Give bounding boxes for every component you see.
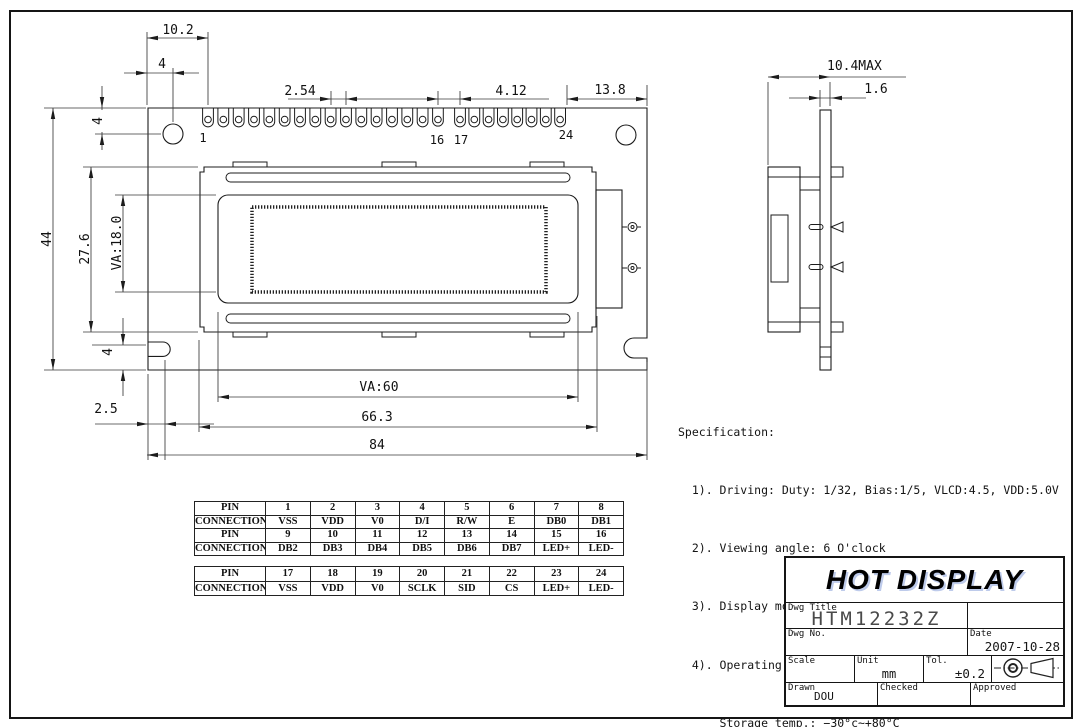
pin-pad — [433, 108, 444, 126]
pin-hole — [404, 116, 411, 123]
dim-slot-width: 2.5 — [94, 402, 214, 426]
dwg-no-label: Dwg No. — [788, 629, 826, 640]
pin-table-cell: DB5 — [400, 542, 445, 556]
mounting-hole-right — [616, 125, 636, 145]
pin-table-row: CONNECTIONVSSVDDV0D/IR/WEDB0DB1 — [195, 515, 624, 529]
pin-table-cell: 8 — [579, 502, 624, 516]
pin-hole — [220, 116, 227, 123]
pin-pad — [249, 108, 260, 127]
pin-hole — [485, 116, 492, 123]
pin-table-cell: 17 — [266, 567, 311, 582]
dim-hole-vertical: 4 — [91, 86, 106, 150]
viewing-area — [252, 207, 546, 292]
pin-table-cell: 10 — [310, 529, 355, 543]
pin-table-cell: 18 — [310, 567, 355, 582]
pin-pad — [498, 108, 509, 127]
pin-table-cell: 15 — [534, 529, 579, 543]
company-name: HOT DISPLAY — [786, 558, 1063, 602]
pin-pad — [279, 108, 290, 126]
dim-module-width: 66.3 — [199, 410, 597, 429]
pin-pad — [555, 108, 566, 127]
pin-table-row: PIN1718192021222324 — [195, 567, 624, 582]
pin-hole — [297, 116, 304, 123]
date-value: 2007-10-28 — [985, 639, 1060, 654]
pin-hole — [312, 116, 319, 123]
pin-table-cell: PIN — [195, 502, 266, 516]
mounting-hole-left — [163, 124, 183, 144]
pin-table-cell: R/W — [445, 515, 490, 529]
pin-table-cell: LED+ — [534, 542, 579, 556]
pin-table-cell: 14 — [489, 529, 534, 543]
scale-label: Scale — [788, 656, 815, 667]
side-claw-top — [831, 167, 843, 177]
bezel-slot-bottom — [226, 314, 570, 323]
pin-table-cell: 12 — [400, 529, 445, 543]
pin-table-cell: 9 — [266, 529, 311, 543]
pin-table-cell: DB7 — [489, 542, 534, 556]
pin-table-cell: 11 — [355, 529, 400, 543]
spec-line: 1). Driving: Duty: 1/32, Bias:1/5, VLCD:… — [678, 481, 1059, 500]
dim-hole-horizontal: 4 — [124, 57, 199, 75]
side-pins — [809, 222, 843, 272]
svg-text:66.3: 66.3 — [361, 410, 392, 425]
pin-table-cell: DB3 — [310, 542, 355, 556]
pin-pad — [341, 108, 352, 127]
drawn-label: Drawn — [788, 683, 815, 694]
pin-table-2: PIN1718192021222324CONNECTIONVSSVDDV0SCL… — [194, 566, 624, 596]
pin-table-cell: 7 — [534, 502, 579, 516]
front-view: 1 16 17 24 — [148, 108, 647, 370]
pin-table-cell: DB0 — [534, 515, 579, 529]
pin-pad — [233, 108, 244, 127]
pin-table-cell: D/I — [400, 515, 445, 529]
pin-header — [203, 108, 566, 127]
dim-thickness-max: 10.4MAX — [768, 59, 906, 79]
pin-table-cell: CONNECTION — [195, 515, 266, 529]
pin-table-cell: 1 — [266, 502, 311, 516]
drawing-sheet: 1 16 17 24 — [0, 0, 1081, 727]
svg-text:13.8: 13.8 — [594, 83, 625, 98]
pin-table-row: CONNECTIONDB2DB3DB4DB5DB6DB7LED+LED- — [195, 542, 624, 556]
pin-pad — [387, 108, 398, 127]
pin-table-cell: E — [489, 515, 534, 529]
pcb-outline — [148, 108, 647, 370]
svg-text:VA:18.0: VA:18.0 — [110, 216, 125, 271]
pin-table-cell: CONNECTION — [195, 581, 266, 596]
pin-table-cell: 19 — [355, 567, 400, 582]
pin-table-cell: 21 — [445, 567, 490, 582]
dim-pcb-thickness: 1.6 — [789, 82, 888, 100]
pin-table-cell: 24 — [579, 567, 624, 582]
pin-hole — [389, 116, 396, 123]
pin-hole — [457, 116, 464, 123]
pin-table-cell: PIN — [195, 567, 266, 582]
pin-table-cell: DB1 — [579, 515, 624, 529]
unit-label: Unit — [857, 656, 879, 667]
pin-hole — [358, 116, 365, 123]
svg-text:4: 4 — [91, 117, 106, 125]
pin-table-cell: DB4 — [355, 542, 400, 556]
pin-table-cell: VSS — [266, 515, 311, 529]
pin-pad — [203, 108, 214, 127]
pin-table-cell: 20 — [400, 567, 445, 582]
dim-pcb-height: 44 — [40, 108, 55, 370]
pin-hole — [543, 116, 550, 123]
pin-hole — [251, 116, 258, 123]
checked-label: Checked — [880, 683, 918, 694]
pin-pad — [402, 108, 413, 127]
svg-text:4: 4 — [101, 348, 116, 356]
dwg-title-value: HTM12232Z — [786, 608, 967, 630]
pin-pad — [310, 108, 321, 127]
pin-pad — [455, 108, 466, 127]
side-bezel — [768, 167, 800, 332]
pin-hole — [514, 116, 521, 123]
pin-table-cell: 3 — [355, 502, 400, 516]
pin-table-cell: LED- — [579, 542, 624, 556]
dwg-title-extra-cell — [968, 603, 1063, 628]
pin-pad — [356, 108, 367, 127]
svg-text:VA:60: VA:60 — [359, 380, 398, 395]
pin-hole — [343, 116, 350, 123]
pin-hole — [281, 116, 288, 123]
side-inner-frame — [800, 190, 820, 308]
svg-text:2.54: 2.54 — [284, 84, 315, 99]
pin-24-label: 24 — [559, 128, 573, 142]
pin-table-cell: CONNECTION — [195, 542, 266, 556]
pin-pad — [325, 108, 336, 127]
pin-hole — [373, 116, 380, 123]
pin-table-cell: VSS — [266, 581, 311, 596]
pin-pad — [512, 108, 523, 127]
pin-table-row: CONNECTIONVSSVDDV0SCLKSIDCSLED+LED- — [195, 581, 624, 596]
pin-pad — [371, 108, 382, 127]
svg-text:10.4MAX: 10.4MAX — [827, 59, 882, 74]
frame-tabs — [233, 162, 564, 337]
pin-table-row: PIN910111213141516 — [195, 529, 624, 543]
pin-table-cell: 2 — [310, 502, 355, 516]
pin-pad — [218, 108, 229, 127]
svg-text:2.5: 2.5 — [94, 402, 117, 417]
pin-table-cell: 16 — [579, 529, 624, 543]
dim-pin1-offset: 10.2 — [147, 23, 208, 40]
pin-table-1: PIN12345678CONNECTIONVSSVDDV0D/IR/WEDB0D… — [194, 501, 624, 556]
side-claw-bottom — [831, 322, 843, 332]
dim-pin24-edge: 13.8 — [567, 83, 647, 101]
pin-table-cell: 23 — [534, 567, 579, 582]
tol-label: Tol. — [926, 656, 948, 667]
side-view — [768, 110, 843, 370]
pin-pad — [483, 108, 494, 127]
pin-1-label: 1 — [199, 131, 206, 145]
pin-hole — [235, 116, 242, 123]
pin-hole — [327, 116, 334, 123]
pin-table-cell: CS — [489, 581, 534, 596]
connector-block — [596, 190, 622, 308]
drawn-value: DOU — [814, 690, 834, 703]
left-slot — [148, 342, 170, 356]
svg-text:27.6: 27.6 — [78, 233, 93, 264]
pin-table-cell: 5 — [445, 502, 490, 516]
pin-table-row: PIN12345678 — [195, 502, 624, 516]
dim-va-width: VA:60 — [218, 380, 578, 399]
projection-symbol — [992, 656, 1062, 680]
pin-hole — [205, 116, 212, 123]
pin-pad — [264, 108, 275, 127]
dim-slot-offset: 4 — [101, 318, 125, 396]
pin-hole — [557, 116, 564, 123]
svg-text:84: 84 — [369, 438, 385, 453]
pin-hole — [500, 116, 507, 123]
pin-number-labels: 1 16 17 24 — [199, 128, 573, 147]
pin-16-label: 16 — [430, 133, 444, 147]
pin-hole — [419, 116, 426, 123]
pin-table-cell: LED- — [579, 581, 624, 596]
connector-pins — [622, 223, 641, 273]
pin-table-cell: SCLK — [400, 581, 445, 596]
bezel-slot-top — [226, 173, 570, 182]
side-pcb — [820, 110, 831, 370]
pin-table-cell: VDD — [310, 581, 355, 596]
pin-table-cell: 13 — [445, 529, 490, 543]
dim-module-height: 27.6 — [78, 167, 93, 332]
pin-hole — [528, 116, 535, 123]
pin-hole — [435, 116, 442, 123]
pin-table-cell: V0 — [355, 515, 400, 529]
pin-table-cell: 6 — [489, 502, 534, 516]
pin-hole — [471, 116, 478, 123]
pin-table-cell: LED+ — [534, 581, 579, 596]
svg-text:10.2: 10.2 — [162, 23, 193, 38]
spec-line: Specification: — [678, 423, 1059, 442]
pin-table-cell: PIN — [195, 529, 266, 543]
side-window — [771, 215, 788, 282]
pin-table-cell: SID — [445, 581, 490, 596]
pin-table-cell: DB6 — [445, 542, 490, 556]
pin-table-cell: VDD — [310, 515, 355, 529]
pin-pad — [540, 108, 551, 127]
pin-pad — [526, 108, 537, 127]
pin-17-label: 17 — [454, 133, 468, 147]
pin-pad — [469, 108, 480, 127]
module-frame — [200, 167, 596, 332]
title-block: HOT DISPLAY Dwg Title HTM12232Z Dwg No. … — [784, 556, 1065, 707]
tol-value: ±0.2 — [955, 666, 985, 681]
svg-text:4.12: 4.12 — [495, 84, 526, 99]
dim-va-height: VA:18.0 — [110, 195, 125, 292]
svg-text:1.6: 1.6 — [864, 82, 887, 97]
pin-table-cell: 4 — [400, 502, 445, 516]
lcd-glass — [218, 195, 578, 303]
pin-pad — [295, 108, 306, 127]
svg-text:44: 44 — [40, 231, 55, 247]
spec-line: Storage temp.: −30°c~+80°C — [678, 714, 1059, 727]
pin-table-cell: V0 — [355, 581, 400, 596]
unit-value: mm — [855, 667, 923, 681]
pin-table-cell: 22 — [489, 567, 534, 582]
pin-table-cell: DB2 — [266, 542, 311, 556]
pin-hole — [266, 116, 273, 123]
pin-pad — [417, 108, 428, 127]
svg-text:4: 4 — [158, 57, 166, 72]
dim-pcb-width: 84 — [147, 438, 647, 457]
approved-label: Approved — [973, 683, 1016, 694]
